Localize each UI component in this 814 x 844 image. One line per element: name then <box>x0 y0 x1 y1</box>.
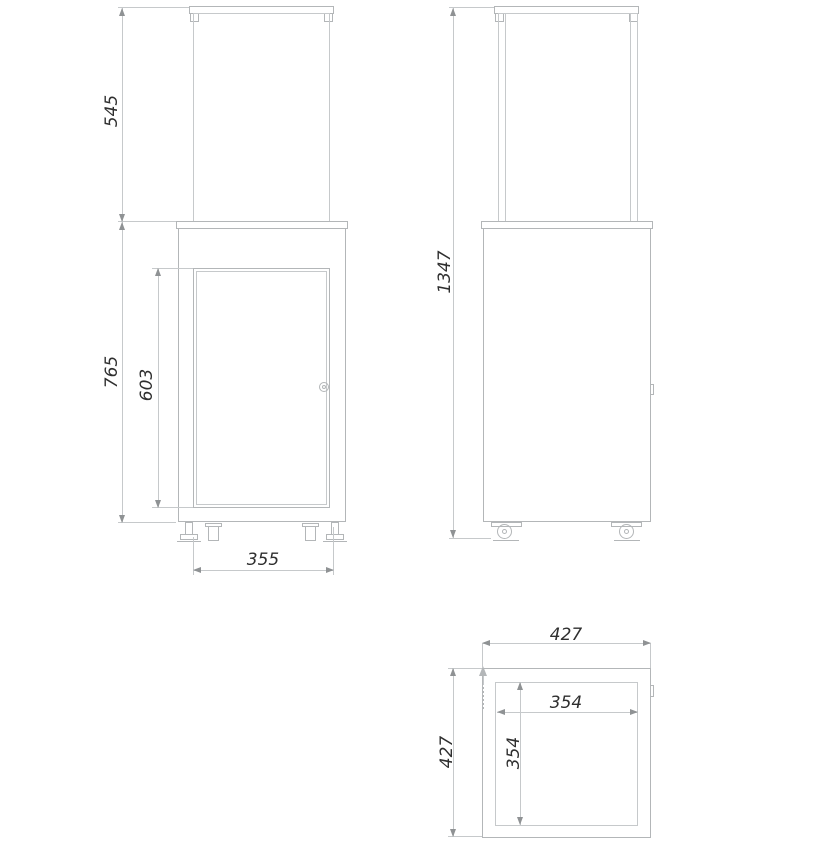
dim-arrow-down <box>155 500 161 508</box>
orientation-arrow-stem <box>483 676 484 685</box>
side-caster-left-hub <box>502 529 507 534</box>
dim-label-354-width: 354 <box>536 695 596 710</box>
dim-label-765: 765 <box>104 347 120 397</box>
dim-arrow-up <box>450 668 456 676</box>
marking-micro-text <box>482 687 484 709</box>
dim-label-427-width: 427 <box>536 627 596 642</box>
technical-drawing-canvas: 545 765 603 355 <box>0 0 814 844</box>
dim-label-1347: 1347 <box>437 242 453 302</box>
dim-arrow-left <box>193 567 201 573</box>
dim-line <box>193 570 334 571</box>
front-door-inner <box>196 271 327 505</box>
top-handle-bump <box>650 685 654 697</box>
dim-label-427-depth: 427 <box>439 722 455 782</box>
dim-arrow-up <box>119 8 125 16</box>
dim-arrow-left <box>497 709 505 715</box>
dim-extension-line <box>449 538 491 539</box>
side-glass-inner-line-left <box>505 13 506 222</box>
front-foot-left-base <box>180 534 198 540</box>
dim-label-545: 545 <box>104 86 120 136</box>
front-caster-right-body <box>305 526 316 541</box>
dim-extension-line <box>118 221 176 222</box>
front-foot-right-groundline <box>323 541 347 542</box>
dim-extension-line <box>118 7 189 8</box>
side-caster-right-hub <box>624 529 629 534</box>
dim-arrow-down <box>450 530 456 538</box>
dim-arrow-right <box>630 709 638 715</box>
side-caster-left-groundline <box>493 540 519 541</box>
dim-arrow-down <box>450 829 456 837</box>
dim-arrow-right <box>326 567 334 573</box>
front-foot-left-groundline <box>177 541 201 542</box>
side-glass-inner-line-right <box>630 13 631 222</box>
side-door-handle <box>650 384 654 395</box>
front-door-knob-hub <box>322 385 326 389</box>
dim-line <box>122 8 123 222</box>
dim-arrow-up <box>155 268 161 276</box>
dim-arrow-left <box>482 640 490 646</box>
side-caster-right-groundline <box>614 540 640 541</box>
side-glass-panel <box>498 13 638 222</box>
side-body <box>483 228 651 522</box>
dim-arrow-down <box>119 515 125 523</box>
dim-arrow-down <box>517 817 523 825</box>
dim-label-603: 603 <box>139 360 155 410</box>
dim-extension-line <box>650 643 651 668</box>
dim-arrow-up <box>517 682 523 690</box>
dim-arrow-down <box>119 214 125 222</box>
dim-label-354-depth: 354 <box>506 723 522 783</box>
dim-line <box>122 222 123 523</box>
front-foot-right-base <box>326 534 344 540</box>
front-caster-left-body <box>208 526 219 541</box>
dim-extension-line <box>482 643 483 668</box>
dim-arrow-up <box>119 222 125 230</box>
dim-arrow-up <box>450 8 456 16</box>
dim-line <box>158 268 159 508</box>
dim-label-355: 355 <box>233 552 293 568</box>
front-glass-panel <box>193 13 330 222</box>
dim-arrow-right <box>643 640 651 646</box>
dim-extension-line <box>118 522 176 523</box>
